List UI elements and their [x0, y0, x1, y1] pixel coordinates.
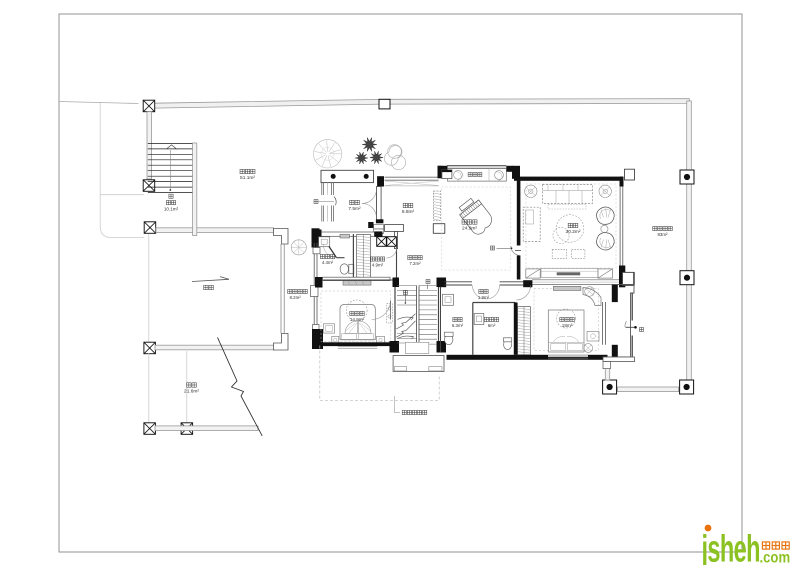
svg-text:1.9m²: 1.9m²: [478, 295, 490, 300]
svg-text:7.2m²: 7.2m²: [409, 261, 421, 266]
svg-text:18m²: 18m²: [562, 323, 573, 328]
svg-text:.com: .com: [760, 549, 791, 565]
svg-text:14.9m²: 14.9m²: [350, 317, 365, 322]
svg-text:4.9m²: 4.9m²: [372, 263, 384, 268]
svg-text:6.3m²: 6.3m²: [452, 323, 464, 328]
svg-text:83m²: 83m²: [657, 232, 668, 237]
svg-text:21.6m²: 21.6m²: [184, 389, 199, 395]
svg-text:7.5m²: 7.5m²: [348, 206, 361, 212]
svg-text:10.1m²: 10.1m²: [164, 207, 179, 212]
svg-text:4.4m²: 4.4m²: [322, 260, 334, 265]
svg-text:8.8m²: 8.8m²: [402, 209, 415, 215]
svg-text:24.9m²: 24.9m²: [462, 226, 477, 232]
svg-text:6m²: 6m²: [488, 323, 496, 328]
svg-text:8.2m²: 8.2m²: [290, 295, 302, 300]
svg-text:jsheh: jsheh: [701, 527, 760, 565]
svg-text:30.2m²: 30.2m²: [566, 229, 581, 235]
svg-text:51.1m²: 51.1m²: [240, 175, 255, 181]
